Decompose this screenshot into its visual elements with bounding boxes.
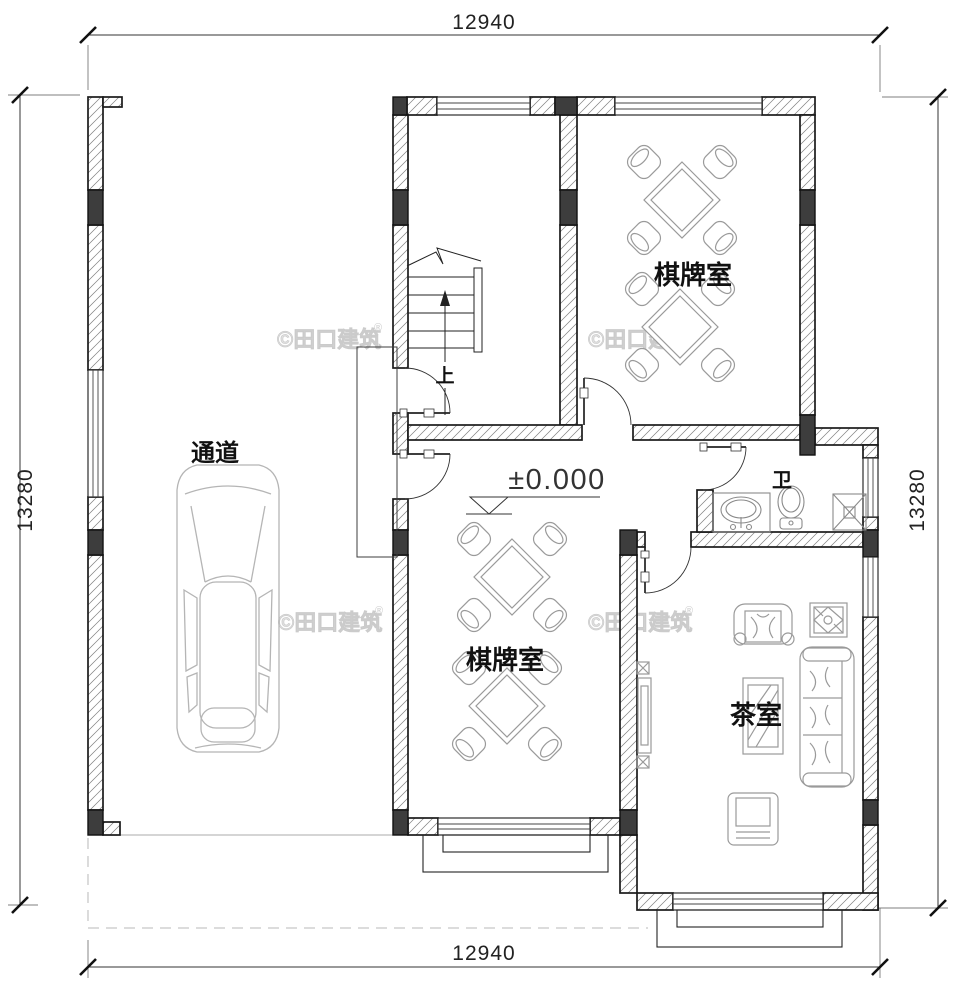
label-stairs-up: 上 [435, 365, 454, 387]
elevation-value: ±0.000 [508, 464, 606, 496]
window-bath-east [863, 458, 878, 517]
sink [713, 493, 770, 532]
watermark-text: ©田口建筑 [588, 610, 692, 635]
floor-plan-canvas: 12940 12940 13280 13280 ©田口建筑 ® ©田口建筑 ® … [0, 0, 960, 1000]
sofa [800, 647, 854, 787]
side-table [810, 603, 847, 637]
dimension-bottom: 12940 [80, 908, 888, 978]
entrance-porch [357, 347, 397, 557]
car [177, 465, 279, 752]
floor-plan-page: 12940 12940 13280 13280 ©田口建筑 ® ©田口建筑 ® … [0, 0, 960, 1000]
door-chess-upper [580, 378, 631, 425]
bathroom-fixtures [713, 486, 866, 532]
armchair [734, 604, 794, 645]
dim-top-value: 12940 [452, 11, 515, 34]
watermark-reg: ® [375, 605, 383, 617]
cabinet [728, 793, 778, 845]
label-chess-room-upper: 棋牌室 [654, 260, 732, 290]
mahjong-table [454, 519, 570, 635]
window-west [88, 370, 103, 497]
watermark-reg: ® [685, 605, 693, 617]
dimension-top: 12940 [80, 11, 888, 92]
window-tea-south [673, 893, 823, 910]
fireplace-console [637, 662, 651, 768]
dim-bottom-value: 12940 [452, 942, 515, 965]
door-bathroom [700, 443, 746, 490]
dim-left-value: 13280 [14, 468, 37, 531]
mahjong-table [624, 142, 740, 258]
exterior-walls [88, 97, 878, 910]
watermark-text: ©田口建筑 [278, 610, 382, 635]
toilet [778, 486, 804, 529]
elevation-marker: ±0.000 [466, 464, 606, 514]
dim-right-value: 13280 [906, 468, 929, 531]
windows [88, 97, 878, 910]
label-passage: 通道 [191, 439, 239, 467]
shower [833, 494, 866, 530]
door-tea-room [641, 547, 691, 593]
label-chess-room-lower: 棋牌室 [466, 645, 544, 675]
label-tea-room: 茶室 [730, 700, 782, 730]
window-north-2 [615, 97, 762, 115]
watermark-reg: ® [374, 322, 382, 334]
staircase: 上 [407, 248, 482, 415]
window-chess-south [438, 818, 590, 835]
window-tea-east [863, 557, 878, 617]
label-bathroom: 卫 [772, 470, 792, 492]
dimension-right: 13280 [838, 89, 948, 916]
watermark-text: ©田口建筑 [277, 327, 381, 352]
dimension-left: 13280 [8, 87, 80, 913]
window-north-1 [437, 97, 530, 115]
door-main-hall [400, 450, 450, 499]
site-boundary [88, 835, 648, 928]
